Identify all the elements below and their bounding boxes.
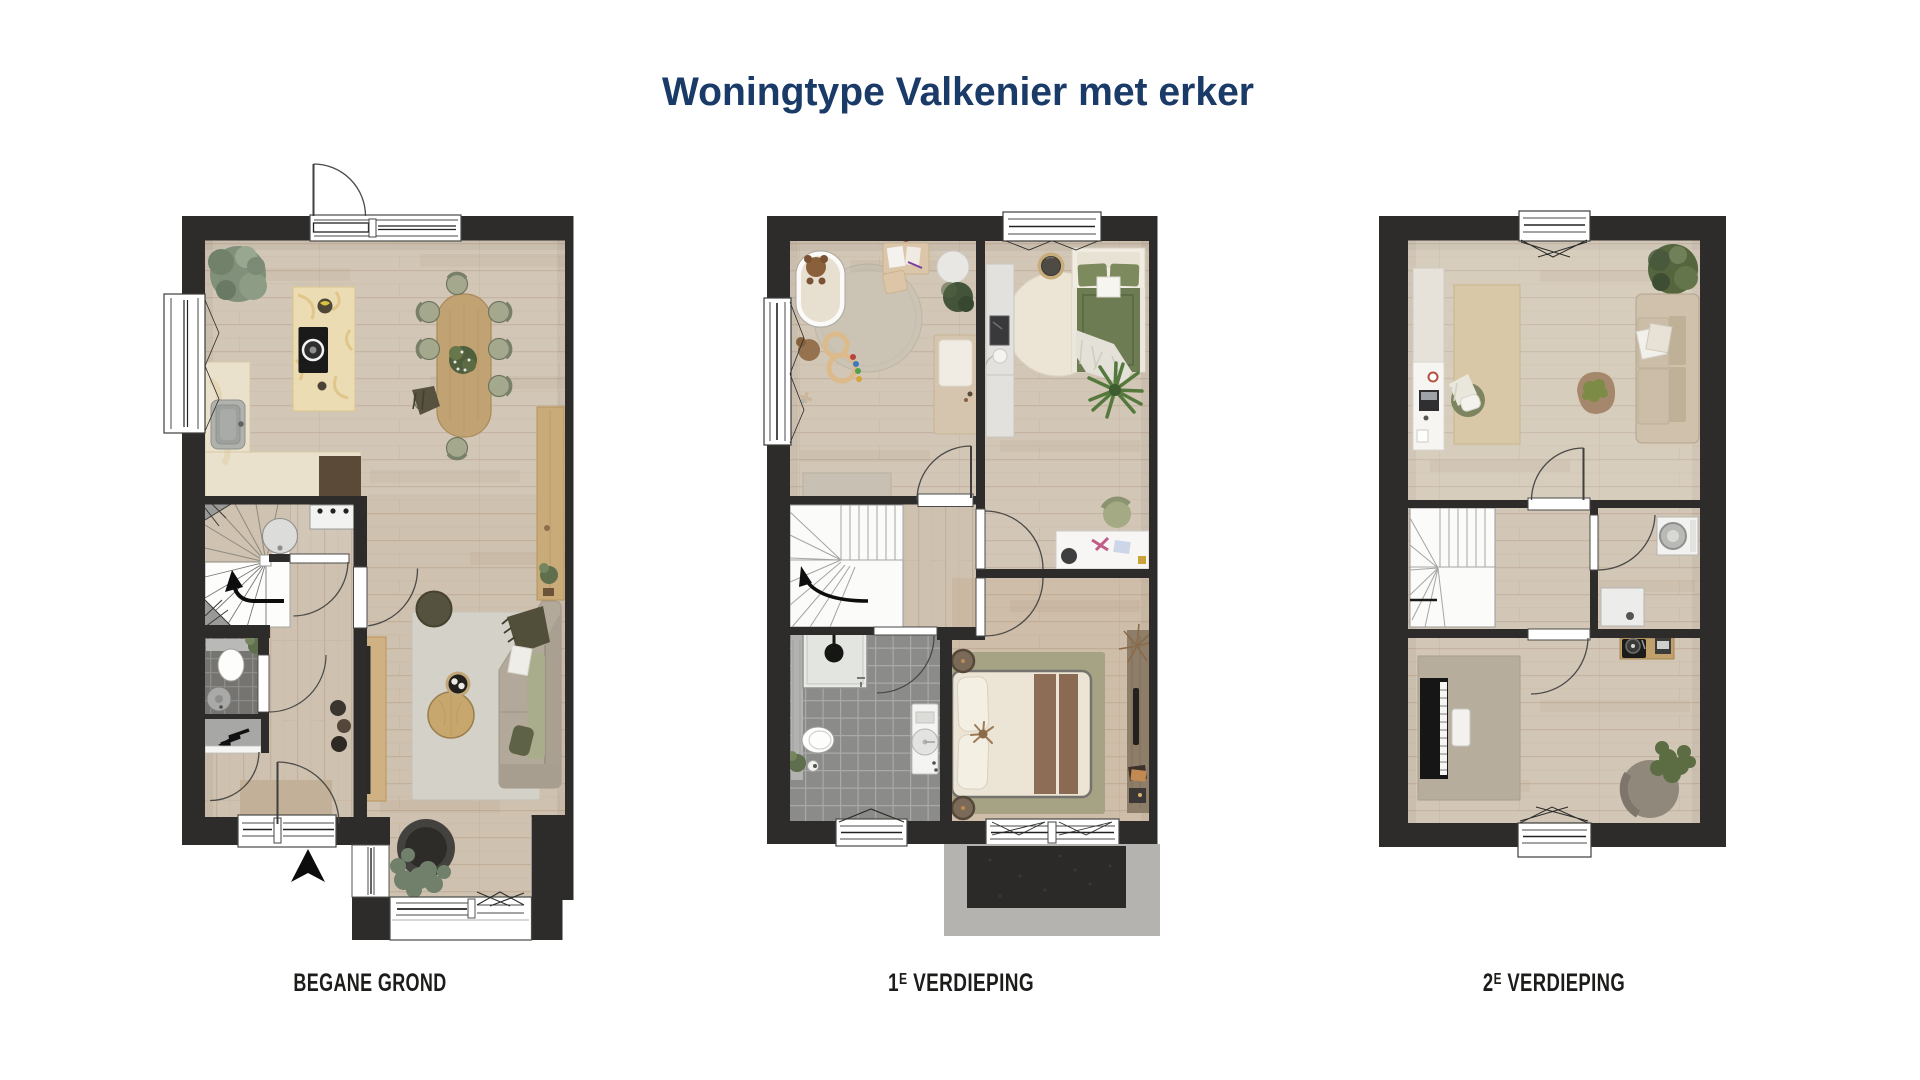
svg-text:2E VERDIEPING: 2E VERDIEPING — [1483, 968, 1625, 996]
svg-text:BEGANE GROND: BEGANE GROND — [293, 968, 446, 997]
svg-text:1E VERDIEPING: 1E VERDIEPING — [888, 968, 1034, 996]
svg-text:Woningtype Valkenier met erker: Woningtype Valkenier met erker — [662, 70, 1254, 114]
